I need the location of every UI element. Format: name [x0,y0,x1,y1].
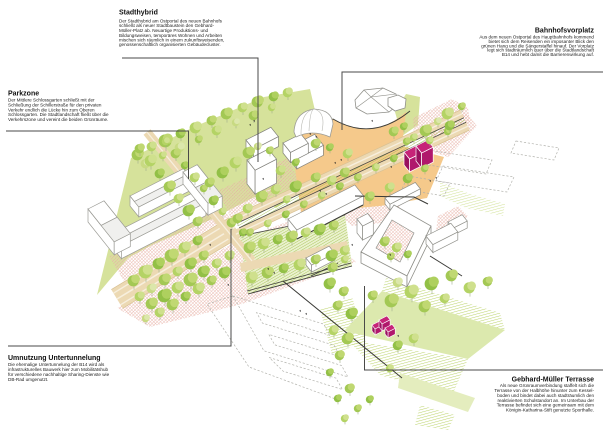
svg-text:Königin-Katharina-Stift genutz: Königin-Katharina-Stift genutzte Sportha… [506,408,594,413]
svg-text:Parkzone: Parkzone [8,91,39,98]
svg-text:Verkehrszone und vereint die b: Verkehrszone und vereint die beiden Grün… [8,117,108,122]
svg-text:genossenschaftlich organisiert: genossenschaftlich organisierten Gebäude… [119,42,221,47]
svg-text:DB-Rad umgenutzt.: DB-Rad umgenutzt. [8,377,48,382]
svg-text:Bahnhofsvorplatz: Bahnhofsvorplatz [535,28,595,35]
svg-text:Umnutzung Untertunnelung: Umnutzung Untertunnelung [8,355,101,362]
svg-text:Stadthybrid: Stadthybrid [119,10,158,17]
svg-text:B14 und hebt damit die Barrier: B14 und hebt damit die Barrierenwirkung … [502,52,594,57]
